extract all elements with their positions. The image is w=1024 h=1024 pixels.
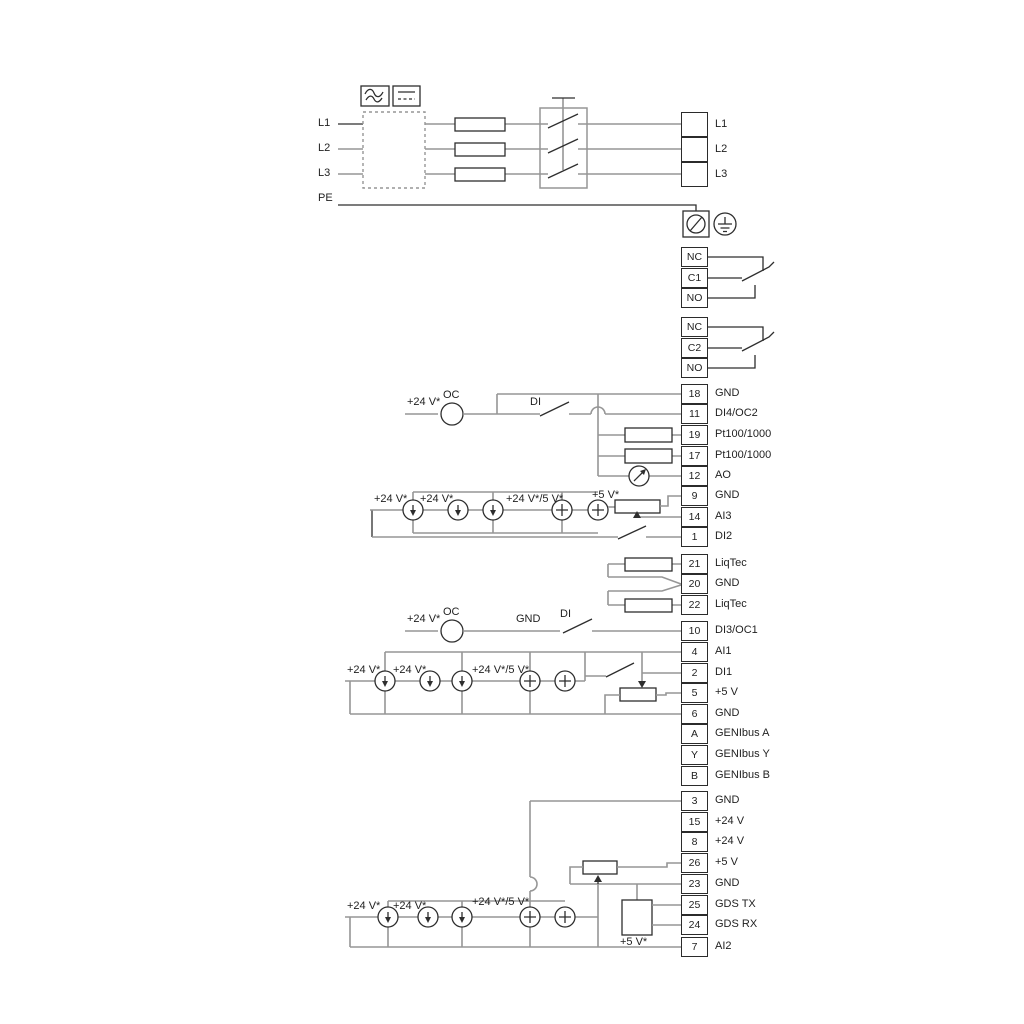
- terminal-5-label: +5 V: [715, 686, 738, 699]
- voltage-source-icon: [555, 671, 575, 691]
- wiring-diagram-svg: [0, 0, 1024, 1024]
- terminal-2-label: DI1: [715, 666, 732, 679]
- ai2-24v-label-2: +24 V*: [393, 900, 426, 912]
- switch-contact-symbol: [606, 663, 634, 677]
- sensor-box: [622, 900, 652, 935]
- terminal-17: 17: [681, 446, 708, 466]
- pe-terminal-icon: [683, 211, 709, 237]
- ai2-sensor-group: [345, 801, 681, 947]
- ai2-24v-label-1: +24 V*: [347, 900, 380, 912]
- terminal-24-label: GDS RX: [715, 918, 757, 931]
- terminal-18-label: GND: [715, 387, 739, 400]
- terminal-26: 26: [681, 853, 708, 873]
- terminal-24: 24: [681, 915, 708, 935]
- terminal-10-label: DI3/OC1: [715, 624, 758, 637]
- terminal-3: 3: [681, 791, 708, 811]
- terminal-7-label: AI2: [715, 940, 732, 953]
- relay2-nc: NC: [681, 317, 708, 337]
- terminal-21-label: LiqTec: [715, 557, 747, 570]
- terminal-21: 21: [681, 554, 708, 574]
- pt100-circuits: [598, 428, 681, 463]
- terminal-26-label: +5 V: [715, 856, 738, 869]
- terminal-1: 1: [681, 527, 708, 547]
- current-source-icon: [452, 671, 472, 691]
- terminal-14-label: AI3: [715, 510, 732, 523]
- terminal-25: 25: [681, 895, 708, 915]
- voltage-source-icon: [588, 500, 608, 520]
- terminal-18: 18: [681, 384, 708, 404]
- terminal-9-label: GND: [715, 489, 739, 502]
- terminal-23-label: GND: [715, 877, 739, 890]
- ai3-24v-label-2: +24 V*: [420, 493, 453, 505]
- di3-oc-label: OC: [443, 606, 460, 618]
- di3-24v-label: +24 V*: [407, 613, 440, 625]
- terminal-20: 20: [681, 574, 708, 594]
- terminal-B: B: [681, 766, 708, 786]
- relay1-contact-symbol: [708, 257, 774, 298]
- voltage-source-icon: [555, 907, 575, 927]
- terminal-1-label: DI2: [715, 530, 732, 543]
- di4-oc-label: OC: [443, 389, 460, 401]
- terminal-A-label: GENIbus A: [715, 727, 769, 740]
- potentiometer-symbol: [615, 500, 660, 513]
- ai3-5v-label: +5 V*: [592, 489, 619, 501]
- terminal-20-label: GND: [715, 577, 739, 590]
- potentiometer-symbol: [620, 688, 656, 701]
- dc-icon: [393, 86, 420, 106]
- relay2-c2: C2: [681, 338, 708, 358]
- terminal-2: 2: [681, 663, 708, 683]
- resistor-symbol: [625, 449, 672, 463]
- resistor-symbol: [625, 558, 672, 571]
- di4-24v-label: +24 V*: [407, 396, 440, 408]
- power-out-label-l1: L1: [715, 118, 727, 131]
- terminal-15-label: +24 V: [715, 815, 744, 828]
- terminal-8-label: +24 V: [715, 835, 744, 848]
- switch-contact-symbol: [540, 402, 569, 416]
- potentiometer-symbol: [583, 861, 617, 874]
- terminal-6-label: GND: [715, 707, 739, 720]
- ac-icon: [361, 86, 389, 106]
- open-collector-icon: [441, 403, 463, 425]
- terminal-14: 14: [681, 507, 708, 527]
- power-in-label-l2: L2: [318, 142, 330, 154]
- power-in-label-l3: L3: [318, 167, 330, 179]
- terminal-17-label: Pt100/1000: [715, 449, 771, 462]
- terminal-22: 22: [681, 595, 708, 615]
- rfi-filter-box: [363, 112, 425, 188]
- ai2-5v-label: +5 V*: [620, 936, 647, 948]
- ai1-24v-label-2: +24 V*: [393, 664, 426, 676]
- current-source-icon: [483, 500, 503, 520]
- terminal-6: 6: [681, 704, 708, 724]
- terminal-25-label: GDS TX: [715, 898, 756, 911]
- terminal-B-label: GENIbus B: [715, 769, 770, 782]
- terminal-10: 10: [681, 621, 708, 641]
- terminal-22-label: LiqTec: [715, 598, 747, 611]
- power-in-label-pe: PE: [318, 192, 333, 204]
- resistor-symbol: [625, 428, 672, 442]
- terminal-7: 7: [681, 937, 708, 957]
- relay1-no: NO: [681, 288, 708, 308]
- terminal-Y: Y: [681, 745, 708, 765]
- power-out-label-l3: L3: [715, 168, 727, 181]
- ai1-24v-label-1: +24 V*: [347, 664, 380, 676]
- voltage-source-icon: [520, 907, 540, 927]
- terminal-3-label: GND: [715, 794, 739, 807]
- terminal-19-label: Pt100/1000: [715, 428, 771, 441]
- ai3-24v-5v-label: +24 V*/5 V*: [506, 493, 563, 505]
- terminal-23: 23: [681, 874, 708, 894]
- terminal-out-l3: [681, 162, 708, 187]
- terminal-4-label: AI1: [715, 645, 732, 658]
- ai1-24v-5v-label: +24 V*/5 V*: [472, 664, 529, 676]
- open-collector-icon: [441, 620, 463, 642]
- ai1-sensor-group: [345, 652, 681, 714]
- di3-circuit: [405, 619, 681, 642]
- wire-hop: [530, 877, 537, 891]
- ao-circuit: [598, 466, 681, 486]
- power-in-label-l1: L1: [318, 117, 330, 129]
- terminal-8: 8: [681, 832, 708, 852]
- terminal-out-l1: [681, 112, 708, 137]
- switch-contact-symbol: [563, 619, 592, 633]
- terminal-12: 12: [681, 466, 708, 486]
- terminal-12-label: AO: [715, 469, 731, 482]
- terminal-15: 15: [681, 812, 708, 832]
- power-out-label-l2: L2: [715, 143, 727, 156]
- analog-output-meter-icon: [629, 466, 649, 486]
- terminal-19: 19: [681, 425, 708, 445]
- liqtec-circuits: [608, 558, 681, 612]
- terminal-out-l2: [681, 137, 708, 162]
- di3-di-label: DI: [560, 608, 571, 620]
- relay1-nc: NC: [681, 247, 708, 267]
- terminal-Y-label: GENIbus Y: [715, 748, 770, 761]
- di4-di-label: DI: [530, 396, 541, 408]
- terminal-9: 9: [681, 486, 708, 506]
- wiring-diagram: L1 L2 L3 PE L1 L2 L3 NC C1 NO NC C2 NO 1…: [0, 0, 1024, 1024]
- terminal-11: 11: [681, 404, 708, 424]
- terminal-11-label: DI4/OC2: [715, 407, 758, 420]
- earth-ground-icon: [714, 213, 736, 235]
- relay2-contact-symbol: [708, 327, 774, 368]
- ai2-24v-5v-label: +24 V*/5 V*: [472, 896, 529, 908]
- fuse-symbol: [425, 118, 548, 181]
- resistor-symbol: [625, 599, 672, 612]
- switch-contact-symbol: [618, 526, 646, 539]
- terminal-4: 4: [681, 642, 708, 662]
- terminal-A: A: [681, 724, 708, 744]
- relay2-no: NO: [681, 358, 708, 378]
- ai3-24v-label-1: +24 V*: [374, 493, 407, 505]
- current-source-icon: [452, 907, 472, 927]
- power-section: [338, 86, 736, 237]
- terminal-5: 5: [681, 683, 708, 703]
- di3-gnd-label: GND: [516, 613, 540, 625]
- relay1-c1: C1: [681, 268, 708, 288]
